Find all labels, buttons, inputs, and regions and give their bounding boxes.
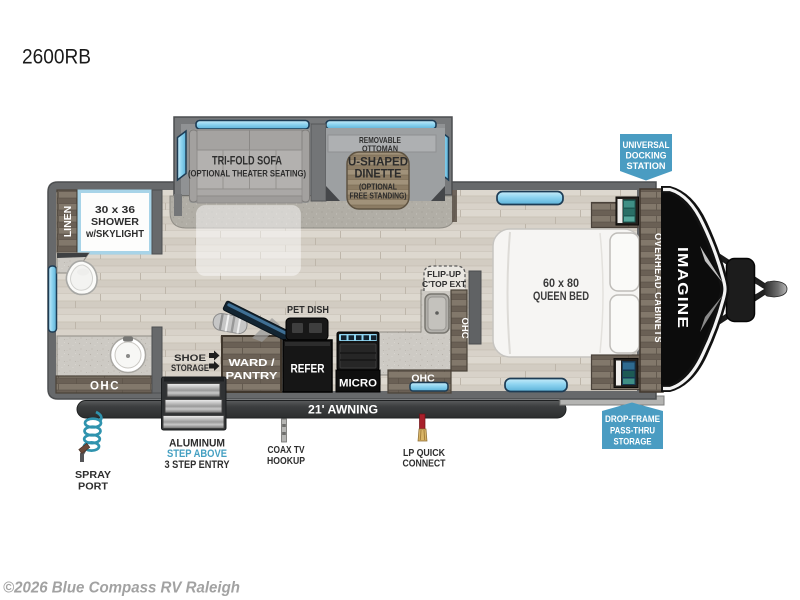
svg-text:QUEEN BED: QUEEN BED — [533, 291, 589, 303]
svg-text:IMAGINE: IMAGINE — [674, 247, 691, 329]
svg-text:CONNECT: CONNECT — [403, 458, 446, 470]
svg-text:U-SHAPED: U-SHAPED — [348, 157, 408, 169]
svg-text:30 x 36: 30 x 36 — [95, 205, 136, 216]
svg-text:21' AWNING: 21' AWNING — [308, 405, 378, 417]
svg-text:3 STEP ENTRY: 3 STEP ENTRY — [165, 459, 231, 471]
svg-text:LINEN: LINEN — [62, 206, 74, 238]
svg-text:PASS-THRU: PASS-THRU — [610, 426, 655, 437]
svg-text:DINETTE: DINETTE — [355, 169, 402, 181]
svg-text:©2026 Blue Compass RV Raleigh: ©2026 Blue Compass RV Raleigh — [3, 580, 240, 597]
svg-text:SHOWER: SHOWER — [91, 217, 140, 228]
svg-text:FREE STANDING): FREE STANDING) — [350, 191, 407, 201]
svg-text:TRI-FOLD SOFA: TRI-FOLD SOFA — [212, 156, 282, 168]
svg-text:STATION: STATION — [627, 161, 666, 172]
svg-text:w/SKYLIGHT: w/SKYLIGHT — [85, 229, 144, 240]
svg-text:60 x 80: 60 x 80 — [543, 278, 579, 290]
svg-text:PORT: PORT — [78, 481, 109, 493]
svg-text:WARD /: WARD / — [229, 357, 275, 369]
svg-text:OHC: OHC — [459, 317, 470, 338]
svg-text:PANTRY: PANTRY — [226, 370, 278, 382]
svg-text:MICRO: MICRO — [339, 378, 377, 390]
svg-text:STORAGE: STORAGE — [171, 363, 209, 374]
svg-text:(OPTIONAL THEATER SEATING): (OPTIONAL THEATER SEATING) — [188, 169, 306, 179]
svg-text:SPRAY: SPRAY — [75, 469, 111, 481]
svg-text:STORAGE: STORAGE — [614, 437, 652, 448]
svg-text:OHC: OHC — [90, 381, 120, 393]
svg-text:UNIVERSAL: UNIVERSAL — [623, 140, 670, 151]
svg-text:DOCKING: DOCKING — [626, 151, 667, 162]
svg-text:C'TOP EXT: C'TOP EXT — [422, 279, 467, 289]
svg-text:DROP-FRAME: DROP-FRAME — [605, 414, 660, 425]
svg-text:FLIP-UP: FLIP-UP — [427, 269, 461, 279]
svg-text:2600RB: 2600RB — [22, 45, 91, 69]
svg-text:PET DISH: PET DISH — [287, 304, 329, 316]
svg-text:HOOKUP: HOOKUP — [267, 455, 305, 467]
svg-text:REFER: REFER — [291, 364, 326, 376]
